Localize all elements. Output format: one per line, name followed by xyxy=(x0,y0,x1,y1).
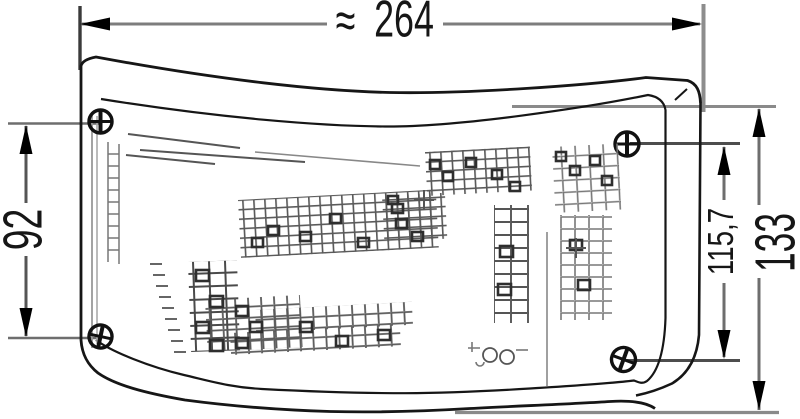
svg-text:≈: ≈ xyxy=(336,0,356,50)
svg-text:92: 92 xyxy=(0,209,53,251)
svg-text:264: 264 xyxy=(374,0,434,48)
svg-text:133: 133 xyxy=(744,213,800,272)
svg-text:115,7: 115,7 xyxy=(700,208,740,275)
